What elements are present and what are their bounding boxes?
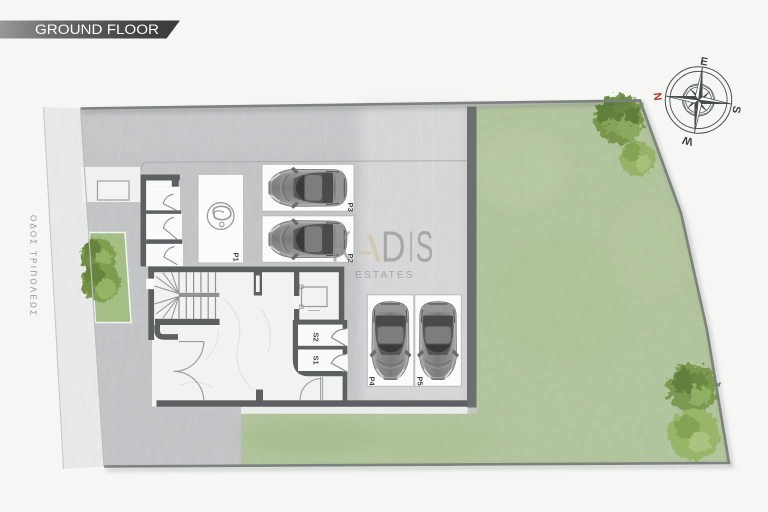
svg-text:D: D <box>381 223 406 272</box>
svg-text:P5: P5 <box>416 377 425 386</box>
svg-text:GROUND FLOOR: GROUND FLOOR <box>35 22 159 37</box>
svg-text:P4: P4 <box>368 377 377 387</box>
svg-text:I: I <box>409 223 414 272</box>
svg-text:P3: P3 <box>346 203 355 212</box>
svg-text:S: S <box>416 223 434 272</box>
svg-text:N: N <box>652 92 665 101</box>
svg-text:K: K <box>331 223 352 272</box>
svg-text:ESTATES: ESTATES <box>355 269 415 281</box>
svg-text:P1: P1 <box>232 253 241 262</box>
svg-text:S1: S1 <box>312 356 321 365</box>
svg-text:ΟΔΟΣ ΤΡΙΠΟΛΕΩΣ: ΟΔΟΣ ΤΡΙΠΟΛΕΩΣ <box>29 215 38 318</box>
svg-text:S2: S2 <box>312 333 321 342</box>
